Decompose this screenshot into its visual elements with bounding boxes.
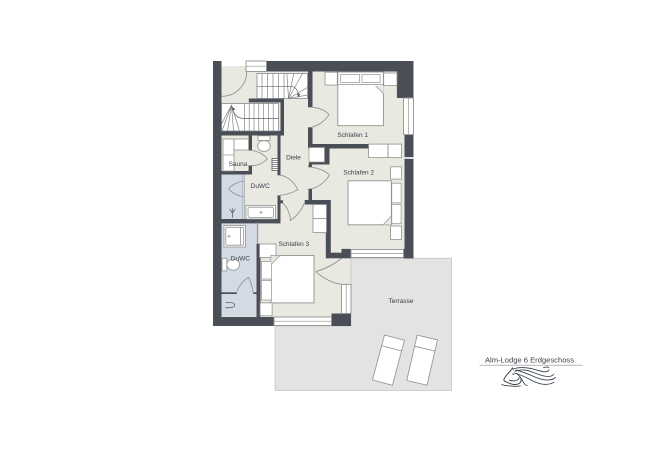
svg-text:DuWC: DuWC: [231, 255, 250, 262]
svg-text:Sauna: Sauna: [229, 161, 248, 168]
svg-text:Schlafen 1: Schlafen 1: [337, 132, 368, 139]
svg-text:DuWC: DuWC: [251, 183, 270, 190]
svg-text:Alm-Lodge 6 Erdgeschoss: Alm-Lodge 6 Erdgeschoss: [485, 356, 574, 365]
svg-text:Schlafen 2: Schlafen 2: [343, 169, 374, 176]
svg-text:Schlafen 3: Schlafen 3: [278, 241, 309, 248]
svg-text:Terrasse: Terrasse: [389, 298, 414, 305]
svg-text:Diele: Diele: [286, 154, 301, 161]
